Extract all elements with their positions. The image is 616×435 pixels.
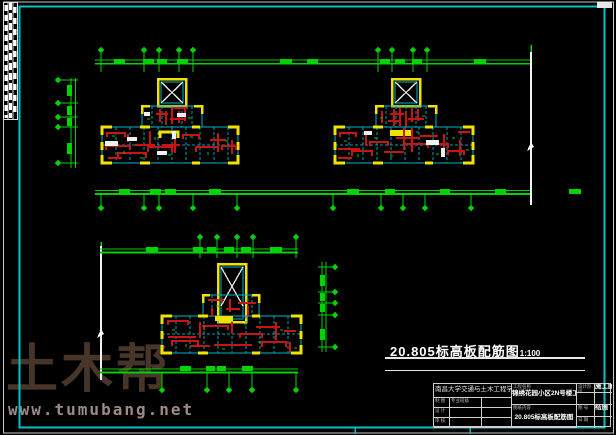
floor-plan-top-left [102, 79, 238, 163]
title-block-row-label: 设 计 [434, 408, 450, 418]
dimension-top-axis [95, 47, 530, 72]
floor-plan-top-right [335, 79, 473, 163]
title-block-empty-cell [595, 393, 612, 405]
sheet-no-value: 结施 [595, 405, 612, 417]
dimension-left-planA [55, 77, 78, 168]
elevator-x-brace [161, 82, 183, 103]
title-block-empty-cell [577, 393, 595, 405]
title-block-row-label: 审 核 [434, 418, 450, 428]
title-block-school: 南昌大学交通与土木工程学院 [434, 384, 512, 398]
stage-label: 设计阶段 [577, 384, 595, 393]
dimension-planC-right [318, 262, 338, 352]
stage-value: 施工图 [595, 384, 612, 393]
leader-line-right [527, 45, 534, 205]
title-block: 南昌大学交通与土木工程学院 制 图 专业班级 设 计 审 核 工程名称 锦绣花园… [433, 383, 611, 427]
title-block-project-cell: 工程名称 锦绣花园小区2N号楼工程设计 [512, 384, 577, 405]
revision-strip [4, 3, 18, 120]
title-block-row-label: 制 图 [434, 398, 450, 408]
title-block-empty-cell [482, 398, 512, 408]
title-block-class-label: 专业班级 [450, 398, 482, 408]
leader-line-left [97, 242, 104, 380]
frame-corner-label [597, 2, 612, 9]
title-underline-thick [385, 357, 585, 359]
title-underline-thin [385, 370, 585, 371]
elevator-x-brace [395, 82, 417, 103]
title-block-content-cell: 图纸内容 20.805标高板配筋图 [512, 405, 577, 428]
rebar-lines [168, 299, 296, 352]
title-block-empty-cell [450, 408, 482, 418]
title-block-empty-cell [450, 418, 482, 428]
date-value [595, 417, 612, 428]
title-block-empty-cell [482, 418, 512, 428]
dimension-planC-top [100, 234, 299, 258]
dimension-planC-bottom [100, 366, 299, 393]
title-block-empty-cell [482, 408, 512, 418]
content-name: 20.805标高板配筋图 [512, 412, 576, 422]
rebar-lines [338, 108, 470, 158]
date-label: 日 期 [577, 417, 595, 428]
project-name: 锦绣花园小区2N号楼工程设计 [512, 391, 576, 398]
cad-viewport: 土木帮 www.tumubang.net [0, 0, 616, 435]
dimension-bottom-axis [95, 189, 581, 211]
floor-plan-bottom [162, 264, 301, 353]
elevator-x-brace [221, 267, 243, 306]
sheet-no-label: 图 号 [577, 405, 595, 417]
